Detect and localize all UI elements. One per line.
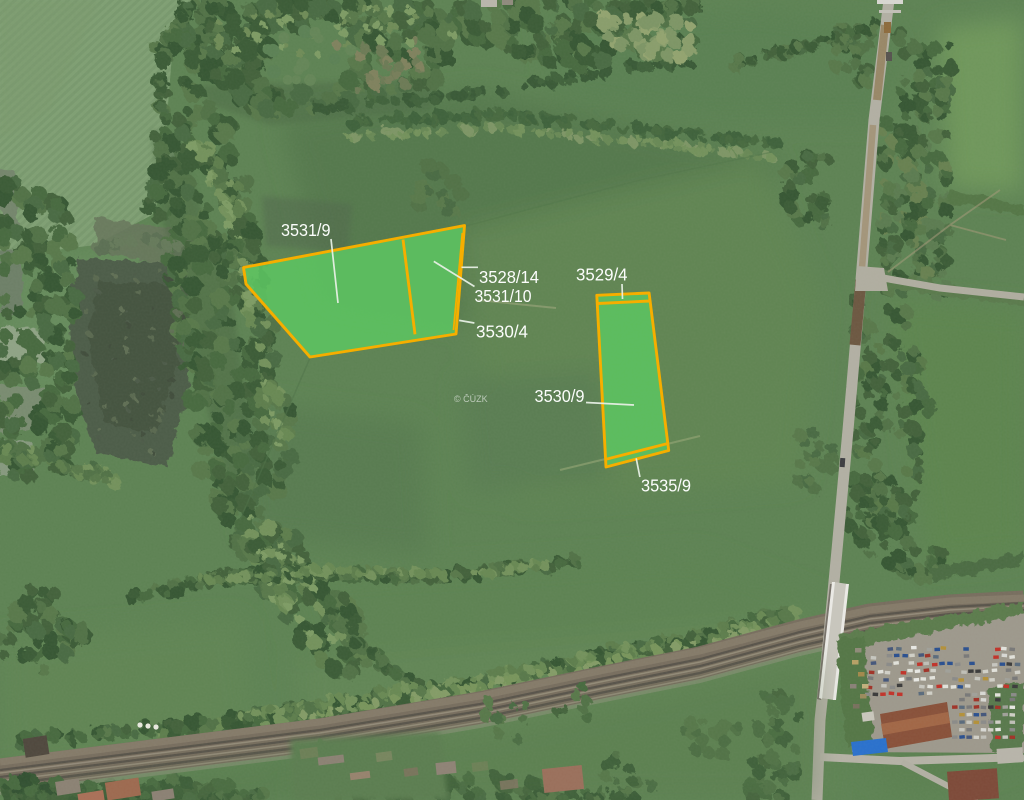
svg-text:© ČÚZK: © ČÚZK <box>454 394 488 404</box>
svg-text:3531/10: 3531/10 <box>475 286 532 306</box>
svg-text:3530/9: 3530/9 <box>535 386 585 406</box>
svg-text:3535/9: 3535/9 <box>641 476 691 496</box>
svg-text:3530/4: 3530/4 <box>476 322 528 342</box>
svg-text:3528/14: 3528/14 <box>479 267 539 287</box>
svg-text:3529/4: 3529/4 <box>576 265 628 285</box>
svg-text:3531/9: 3531/9 <box>281 220 331 240</box>
